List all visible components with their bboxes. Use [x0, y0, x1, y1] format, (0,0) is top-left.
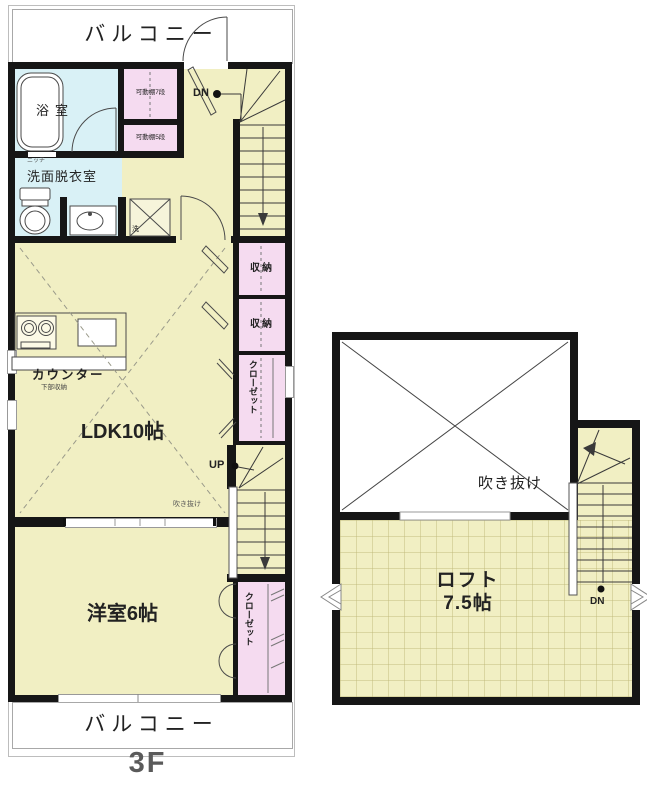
- wall-shelf-right: [177, 69, 184, 158]
- loft-name-label: ロフト: [393, 570, 543, 592]
- balcony-door-opening: [184, 62, 228, 69]
- storage2-label: 収納: [239, 318, 285, 331]
- wall-shelf-mid: [124, 119, 177, 125]
- wall-closetb-top: [227, 574, 292, 582]
- loft-void-label: 吹き抜け: [478, 476, 542, 493]
- shelf7-label: 可動棚7段: [125, 88, 176, 97]
- storage1-label: 収納: [239, 262, 285, 275]
- wall-stairs-top-left: [233, 119, 240, 236]
- floor-plan-canvas: バルコニー バルコニー: [0, 0, 647, 786]
- counter-label: カウンター: [32, 369, 105, 383]
- wall-washroom-divider: [60, 197, 67, 236]
- wall-washer-left: [118, 197, 126, 237]
- bathroom-label: 浴室: [36, 104, 74, 118]
- closet-mid-label: クローゼット: [247, 360, 257, 438]
- stairs-up-label: UP: [209, 459, 224, 471]
- loft-window-right: [632, 584, 640, 610]
- void-note-label: 吹き抜け: [173, 501, 201, 509]
- wall-storage-h2: [233, 351, 285, 355]
- bedroom-label: 洋室6帖: [50, 602, 195, 626]
- niche-opening: [28, 152, 56, 157]
- wall-loft-right: [632, 420, 640, 705]
- loft-dn-label: DN: [590, 596, 604, 607]
- closet-bottom-label: クローゼット: [243, 592, 253, 692]
- window-left-2: [7, 400, 17, 430]
- wall-loft-step: [570, 420, 640, 428]
- wall-shelf-left: [118, 69, 124, 158]
- window-left-1: [7, 350, 17, 374]
- closet-mid-room: [239, 355, 285, 441]
- loft-size-label: 7.5帖: [393, 593, 543, 615]
- balcony-bottom-label: バルコニー: [12, 708, 291, 742]
- ldk-label: LDK10帖: [50, 420, 195, 444]
- washer-mark-label: 洗: [132, 226, 139, 234]
- window-right-mid: [285, 366, 294, 398]
- floor-label: 3F: [90, 746, 205, 782]
- loft-window-left: [332, 584, 340, 610]
- balcony-top-label: バルコニー: [12, 16, 291, 54]
- wall-washroom-bottom-a: [15, 236, 176, 243]
- loft-stairwell: [578, 428, 632, 520]
- wall-loft-bottom: [332, 697, 640, 705]
- stairs-dn-top-label: DN: [193, 87, 209, 99]
- wall-washroom-bottom-b: [231, 236, 285, 243]
- counter-note-label: 下部収納: [41, 384, 67, 391]
- shelf5-label: 可動棚5段: [125, 133, 176, 142]
- wall-up-stairs-left: [227, 445, 236, 489]
- sliding-door-ldk-bedroom: [65, 518, 217, 528]
- wall-storage-h3: [233, 441, 285, 445]
- wall-storage-h1: [233, 295, 285, 299]
- washroom-label: 洗面脱衣室: [27, 170, 97, 184]
- wall-closetb-left: [233, 582, 238, 695]
- niche-label: ニッチ: [27, 158, 45, 165]
